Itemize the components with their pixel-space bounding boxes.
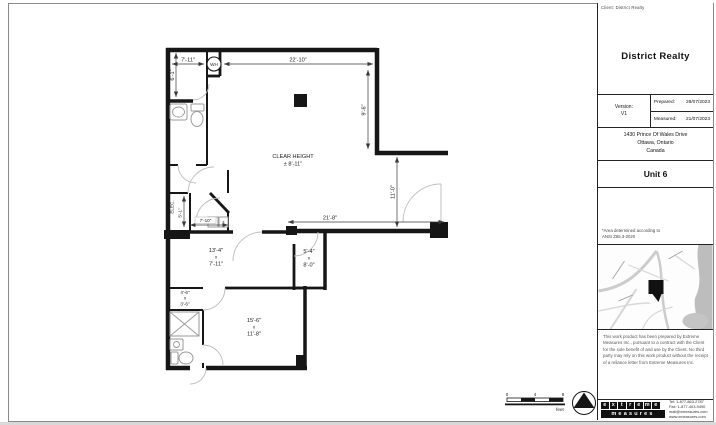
svg-text:x: x	[308, 256, 311, 261]
svg-text:4'-6": 4'-6"	[180, 290, 190, 295]
room-label-storage: 5'-4" x 8'-0"	[303, 249, 314, 269]
dim-vestibule-width: 7'-10"	[200, 218, 212, 223]
sink-2	[170, 339, 183, 350]
address-box: 1430 Prince Of Wales Drive Ottawa, Ontar…	[598, 128, 713, 161]
area-note: *Area determined according to ANSI Z65.3…	[602, 228, 660, 240]
contact-info: Tel: 1-877-863-2787 Fax: 1-877-403-9490 …	[669, 400, 708, 420]
disclaimer-box: This work product has been prepared by E…	[598, 330, 713, 400]
svg-text:x: x	[253, 325, 256, 330]
version-label: Version:	[615, 104, 633, 112]
svg-text:15'-6": 15'-6"	[247, 318, 261, 324]
unit-label: Unit 6	[598, 161, 713, 187]
logo-extreme-tiles: extreme	[601, 402, 665, 410]
version-date-box: Version: V1 Prepared: 28/07/2023 Measure…	[598, 95, 713, 128]
svg-text:feet: feet	[556, 407, 564, 412]
room-label-main-lower: 15'-6" x 11'-8"	[247, 318, 261, 338]
address-line3: Canada	[646, 148, 664, 156]
toilet-1-tank	[191, 104, 204, 111]
drawing-sheet: WH 7'-11" 22'-10" 6'-1" 9'-6" 11'-0" 21'…	[0, 0, 716, 425]
dimension-lines	[172, 53, 444, 227]
version-cell: Version: V1	[598, 95, 651, 127]
toilet-1-bowl	[191, 112, 203, 127]
prepared-row: Prepared: 28/07/2023	[651, 95, 713, 112]
elec-label: ELEC.	[170, 200, 175, 213]
company-box: Client: District Realty District Realty	[598, 3, 713, 95]
svg-text:8: 8	[562, 392, 565, 397]
extreme-measures-logo: extreme measures	[601, 402, 665, 419]
svg-text:7'-11": 7'-11"	[209, 262, 223, 268]
water-heater-label: WH	[210, 62, 218, 67]
svg-text:x: x	[184, 296, 187, 301]
svg-text:11'-8": 11'-8"	[247, 332, 261, 338]
title-block: Client: District Realty District Realty …	[597, 3, 713, 420]
toilet-2-tank	[171, 352, 178, 364]
floor-plan: WH 7'-11" 22'-10" 6'-1" 9'-6" 11'-0" 21'…	[0, 0, 600, 425]
north-arrow-icon	[573, 392, 596, 415]
svg-text:3'-6": 3'-6"	[180, 302, 190, 307]
svg-text:13'-4": 13'-4"	[209, 248, 223, 254]
client-label: Client: District Realty	[601, 5, 644, 10]
dim-elec-depth: 5'-1"	[178, 208, 183, 218]
toilet-2-bowl	[179, 352, 193, 364]
room-label-office: 13'-4" x 7'-11"	[209, 248, 223, 268]
svg-text:4: 4	[534, 392, 537, 397]
notes-box: *Area determined according to ANSI Z65.3…	[598, 188, 713, 245]
address-line1: 1430 Prince Of Wales Drive	[624, 132, 688, 140]
contact-web: www.xmeasures.com	[669, 415, 708, 420]
dim-right-upper: 9'-6"	[362, 104, 368, 115]
logo-measures-bar: measures	[601, 410, 665, 418]
svg-text:8'-0": 8'-0"	[303, 263, 314, 269]
company-name: District Realty	[598, 51, 713, 62]
measured-row: Measured: 21/07/2023	[651, 112, 713, 128]
dim-right-lower: 11'-0"	[391, 185, 397, 199]
unit-box: Unit 6	[598, 161, 713, 188]
dim-entry-depth: 6'-1"	[170, 69, 176, 80]
logo-box: extreme measures Tel: 1-877-863-2787 Fax…	[598, 400, 713, 420]
svg-text:5'-4": 5'-4"	[303, 249, 314, 255]
svg-text:0: 0	[506, 392, 509, 397]
dim-bottom-main: 21'-8"	[323, 216, 337, 222]
clear-height-value: ± 8'-11"	[284, 162, 302, 168]
clear-height-label: CLEAR HEIGHT	[272, 154, 314, 160]
address-line2: Ottawa, Ontario	[637, 140, 673, 148]
dim-entry-width: 7'-11"	[181, 58, 195, 64]
svg-text:x: x	[215, 255, 218, 260]
disclaimer-text: This work product has been prepared by E…	[598, 330, 713, 370]
location-map	[598, 245, 713, 330]
door-swings	[178, 84, 441, 384]
dim-main-width: 22'-10"	[289, 58, 306, 64]
scale-bar: 0 4 8 feet	[505, 392, 565, 412]
room-label-closet: 4'-6" x 3'-6"	[180, 290, 190, 307]
version-value: V1	[621, 111, 627, 119]
